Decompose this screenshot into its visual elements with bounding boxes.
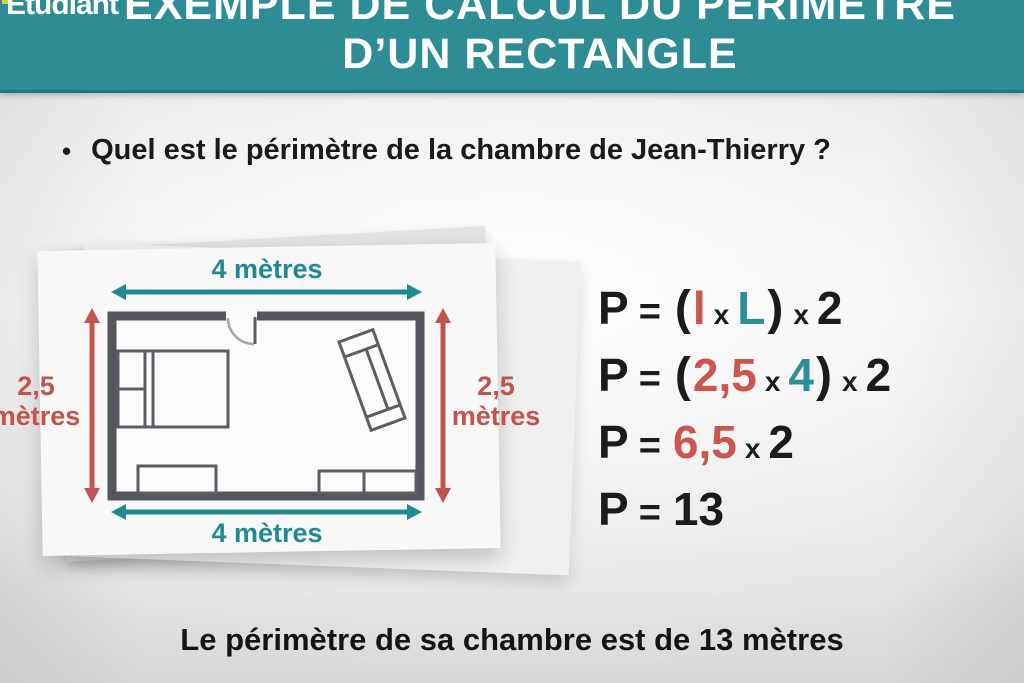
formula-token: x <box>842 366 858 398</box>
formula-token: 13 <box>673 482 724 536</box>
formula-block: P=(lxL)x2 P=(2,5x4)x2 P=6,5x2 P=13 <box>598 281 891 549</box>
formula-token: 2 <box>768 415 794 469</box>
formula-token: x <box>745 433 761 465</box>
formula-token: 6,5 <box>673 415 737 469</box>
dimension-label-bottom: 4 mètres <box>160 518 374 548</box>
formula-token: P <box>598 482 629 536</box>
header-band: Etudiant EXEMPLE DE CALCUL DU PÉRIMÈTRE … <box>0 0 1024 93</box>
formula-token: x <box>793 299 809 331</box>
formula-line-1: P=(lxL)x2 <box>598 281 891 348</box>
dimension-left-unit: mètres <box>0 401 94 431</box>
formula-token: ) <box>814 348 834 403</box>
etudiant-logo: Etudiant <box>6 0 118 20</box>
dimension-label-left: 2,5 mètres <box>0 371 94 431</box>
page-title-line1: EXEMPLE DE CALCUL DU PÉRIMÈTRE <box>110 0 970 27</box>
bullet-icon: • <box>62 136 71 167</box>
formula-token: P <box>598 281 629 335</box>
formula-token: = <box>639 492 661 535</box>
formula-line-3: P=6,5x2 <box>598 415 891 482</box>
dimension-right-value: 2,5 <box>438 371 554 401</box>
desk <box>138 466 216 493</box>
formula-token: 2 <box>866 348 892 402</box>
formula-token: P <box>598 415 629 469</box>
formula-token: l <box>693 281 706 335</box>
formula-token: x <box>765 366 781 398</box>
formula-token: ( <box>673 348 693 403</box>
page-title-line2: D’UN RECTANGLE <box>110 33 970 76</box>
dimension-left-value: 2,5 <box>0 371 94 401</box>
cabinet <box>319 471 416 493</box>
dimension-right-unit: mètres <box>438 401 554 431</box>
formula-line-4: P=13 <box>598 482 891 549</box>
formula-token: x <box>714 299 730 331</box>
question-text: Quel est le périmètre de la chambre de J… <box>91 134 831 167</box>
conclusion-text: Le périmètre de sa chambre est de 13 mèt… <box>0 622 1024 658</box>
formula-token: 2,5 <box>693 348 757 402</box>
formula-token: ( <box>673 281 693 336</box>
formula-token: P <box>598 348 629 402</box>
formula-token: = <box>639 358 661 401</box>
formula-token: L <box>737 281 765 335</box>
formula-token: = <box>639 425 661 468</box>
top-width-arrow <box>111 284 422 300</box>
dimension-label-right: 2,5 mètres <box>438 371 554 431</box>
formula-token: 2 <box>817 281 843 335</box>
formula-token: = <box>639 291 661 334</box>
formula-token: ) <box>765 281 785 336</box>
formula-line-2: P=(2,5x4)x2 <box>598 348 891 415</box>
question-row: • Quel est le périmètre de la chambre de… <box>62 134 831 167</box>
slide: Etudiant EXEMPLE DE CALCUL DU PÉRIMÈTRE … <box>0 0 1024 683</box>
formula-token: 4 <box>788 348 814 402</box>
dimension-label-top: 4 mètres <box>160 254 374 284</box>
